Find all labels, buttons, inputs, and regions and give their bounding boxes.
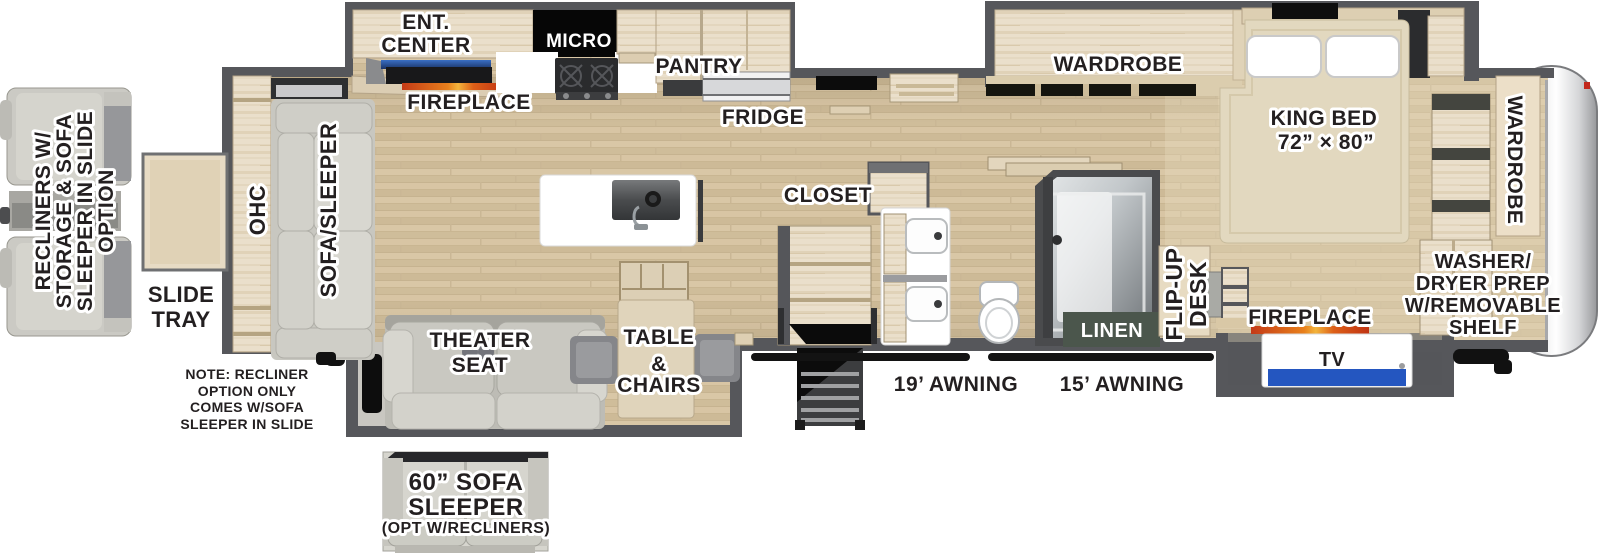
svg-text:OPTION: OPTION	[95, 169, 118, 253]
svg-text:SOFA/SLEEPER: SOFA/SLEEPER	[316, 123, 341, 298]
svg-text:PANTRY: PANTRY	[656, 55, 743, 78]
svg-text:WARDROBE: WARDROBE	[1503, 96, 1526, 225]
svg-text:COMES W/SOFA: COMES W/SOFA	[190, 399, 304, 415]
svg-text:TABLE: TABLE	[624, 326, 695, 349]
svg-text:SLIDE: SLIDE	[148, 282, 214, 307]
svg-text:SLEEPER IN SLIDE: SLEEPER IN SLIDE	[180, 416, 313, 432]
svg-text:CLOSET: CLOSET	[784, 184, 872, 207]
svg-text:72” × 80”: 72” × 80”	[1278, 131, 1374, 154]
svg-text:(OPT W/RECLINERS): (OPT W/RECLINERS)	[382, 520, 551, 537]
svg-text:CENTER: CENTER	[381, 34, 470, 57]
svg-text:FRIDGE: FRIDGE	[722, 106, 804, 129]
svg-text:SLEEPER IN SLIDE: SLEEPER IN SLIDE	[74, 111, 97, 312]
svg-text:OPTION ONLY: OPTION ONLY	[198, 383, 297, 399]
svg-text:FIREPLACE: FIREPLACE	[1248, 306, 1372, 329]
svg-text:THEATER: THEATER	[429, 329, 530, 352]
svg-text:SEAT: SEAT	[452, 354, 508, 377]
svg-text:DRYER PREP: DRYER PREP	[1416, 273, 1550, 295]
svg-text:NOTE: RECLINER: NOTE: RECLINER	[185, 366, 308, 382]
svg-text:STORAGE & SOFA: STORAGE & SOFA	[53, 114, 76, 308]
svg-text:SHELF: SHELF	[1449, 317, 1517, 339]
svg-text:FIREPLACE: FIREPLACE	[407, 91, 531, 114]
svg-text:60” SOFA: 60” SOFA	[409, 469, 524, 496]
svg-text:TV: TV	[1319, 349, 1346, 371]
svg-text:ENT.: ENT.	[402, 11, 450, 34]
svg-text:WASHER/: WASHER/	[1435, 251, 1532, 273]
svg-text:19’ AWNING: 19’ AWNING	[894, 373, 1018, 396]
svg-text:DESK: DESK	[1185, 261, 1211, 327]
svg-text:FLIP-UP: FLIP-UP	[1161, 248, 1187, 341]
svg-text:LINEN: LINEN	[1081, 320, 1144, 342]
svg-text:15’ AWNING: 15’ AWNING	[1060, 373, 1184, 396]
svg-text:OHC: OHC	[245, 185, 270, 235]
svg-text:RECLINERS W/: RECLINERS W/	[32, 132, 55, 291]
svg-text:&: &	[651, 353, 667, 376]
svg-text:WARDROBE: WARDROBE	[1054, 53, 1183, 76]
svg-text:CHAIRS: CHAIRS	[617, 374, 701, 397]
svg-text:KING BED: KING BED	[1271, 107, 1378, 130]
svg-text:MICRO: MICRO	[546, 31, 612, 52]
svg-text:SLEEPER: SLEEPER	[408, 494, 524, 521]
svg-text:W/REMOVABLE: W/REMOVABLE	[1405, 295, 1561, 317]
svg-text:TRAY: TRAY	[151, 307, 210, 332]
